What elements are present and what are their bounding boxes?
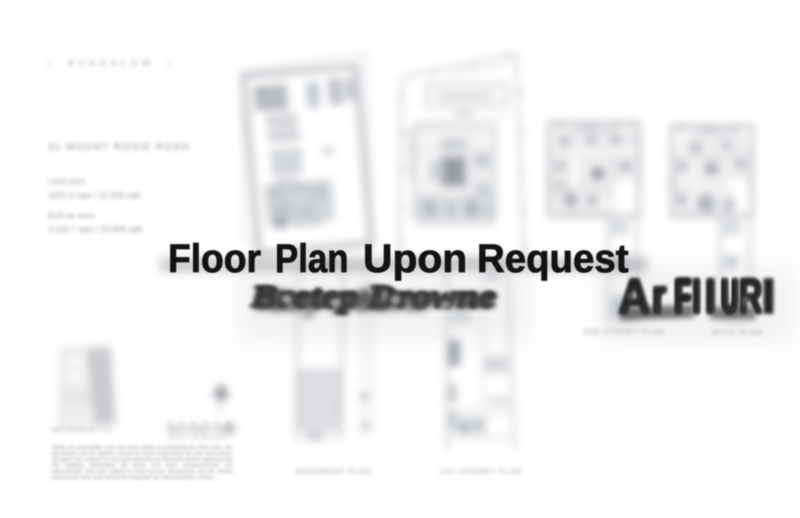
svg-text:0 1 2 3 4 5: 0 1 2 3 4 5	[168, 421, 234, 427]
svg-text:BASEMENT PLAN: BASEMENT PLAN	[296, 467, 372, 476]
svg-text:KEY PLAN (N.T.S.): KEY PLAN (N.T.S.)	[51, 428, 112, 434]
svg-text:1ST STOREY PLAN: 1ST STOREY PLAN	[440, 467, 523, 476]
svg-text:SCALE IN METRES: SCALE IN METRES	[168, 436, 228, 442]
